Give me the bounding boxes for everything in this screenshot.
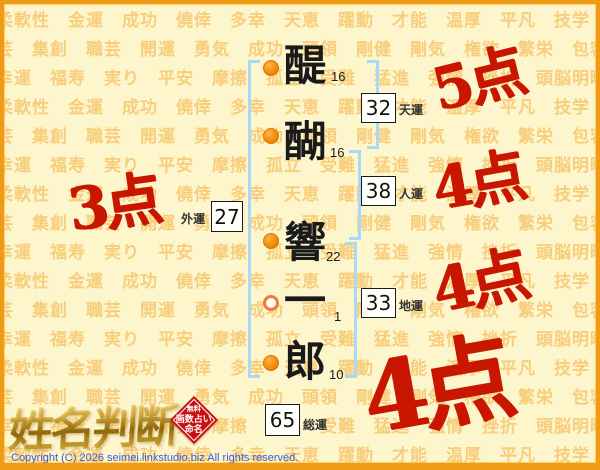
stroke-count: 16 — [330, 146, 344, 159]
souun-score-stamp: 4点 — [356, 334, 514, 443]
tenun-value-box: 32 — [361, 93, 396, 123]
tenun-label: 天運 — [399, 101, 423, 118]
jinun-value-box: 38 — [361, 176, 396, 206]
gaiun-label: 外運 — [181, 210, 205, 227]
souun-label: 総運 — [303, 416, 327, 433]
name-character: 郎 — [284, 341, 326, 383]
stroke-count: 16 — [331, 70, 345, 83]
chiun-value-box: 33 — [361, 288, 396, 318]
seimei-handan-result-page: 柔軟性 金運 成功 僥倖 多幸 天恵 躍動 才能 温厚 平凡 技学 技芸 集創 … — [0, 0, 600, 470]
gaiun-score-stamp: 3点 — [65, 172, 162, 236]
name-dot — [263, 233, 279, 249]
name-character: 醍 — [284, 45, 326, 87]
souun-value-box: 65 — [265, 404, 300, 436]
chiun-score-stamp: 4点 — [427, 247, 530, 319]
site-logo: 姓名判断 — [6, 389, 179, 460]
name-character: 響 — [284, 222, 326, 264]
jinun-bracket — [349, 150, 361, 240]
name-dot — [263, 60, 279, 76]
name-character: 醐 — [284, 121, 326, 163]
name-character: 一 — [284, 280, 326, 322]
gaiun-value-box: 27 — [211, 201, 243, 232]
name-dot — [263, 355, 279, 371]
copyright-notice: Copyright (C) 2026 seimei.linkstudio.biz… — [11, 452, 298, 464]
stroke-count: 10 — [329, 368, 343, 381]
chiun-label: 地運 — [399, 297, 423, 314]
badge-text: 無料 画数占い 命名 — [176, 406, 212, 435]
tenun-score-stamp: 5点 — [427, 44, 527, 116]
gaiun-bracket — [248, 60, 260, 378]
name-dot-open — [263, 295, 279, 311]
stroke-count: 22 — [326, 250, 340, 263]
stroke-count: 1 — [334, 310, 341, 323]
jinun-score-stamp: 4点 — [428, 149, 526, 216]
jinun-label: 人運 — [399, 185, 423, 202]
name-dot — [263, 128, 279, 144]
